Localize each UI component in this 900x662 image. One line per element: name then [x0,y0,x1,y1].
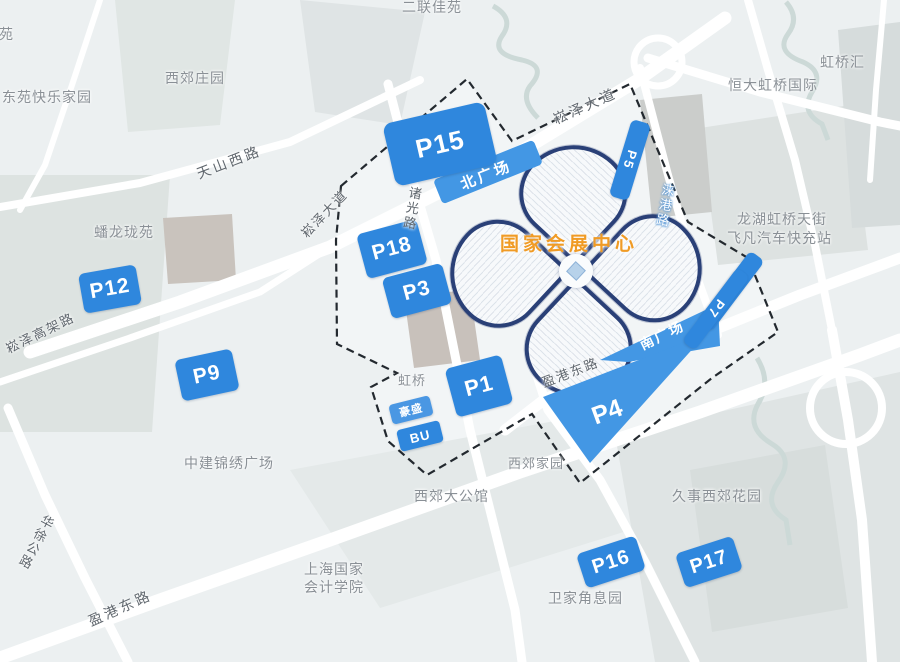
place-label-hongqiao-hui: 虹桥汇 [820,52,865,72]
place-label-panlong: 蟠龙珑苑 [94,222,154,242]
place-label-hongqiao-partial: 虹桥 [398,370,426,389]
place-label-dongyuan: 东苑快乐家园 [2,87,92,107]
place-label-weijiajiao: 卫家角息园 [548,588,623,608]
basemap [0,0,900,662]
place-label-feifan: 飞凡汽车快充站 [727,228,832,248]
place-label-erlian: 二联佳苑 [402,0,462,17]
place-label-jiushi: 久事西郊花园 [672,486,762,506]
place-label-hengda: 恒大虹桥国际 [728,75,818,95]
place-label-xijiao-manor: 西郊庄园 [165,68,225,88]
place-label-yayuan: 雅苑 [0,24,14,44]
map-canvas[interactable]: 北广场 南广场 P4 P15 P5 P18 P3 P12 P9 P1 豪盛 BU… [0,0,900,662]
place-label-xijiao-jiayuan: 西郊家园 [508,453,564,472]
venue-name-label: 国家会展中心 [500,229,638,256]
place-label-accounting: 上海国家会计学院 [302,560,366,596]
place-label-longfor: 龙湖虹桥天街 [737,209,827,229]
place-label-zhongjian: 中建锦绣广场 [184,453,274,473]
place-label-xijiao-mansion: 西郊大公馆 [414,486,489,506]
